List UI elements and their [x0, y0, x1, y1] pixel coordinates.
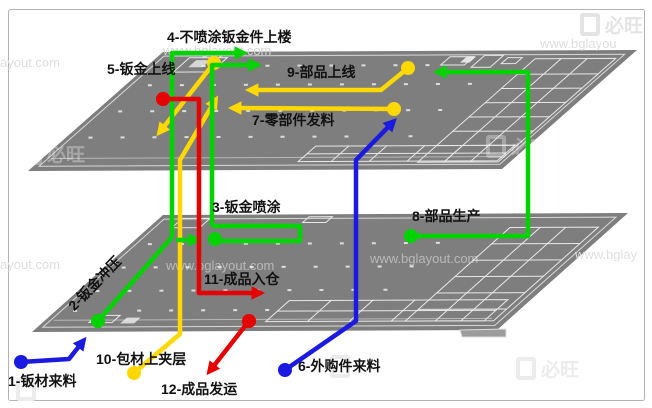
flow-label-12: 12-成品发运	[161, 379, 237, 399]
flow-1-node-dot	[14, 355, 28, 369]
flow-label-9: 9-部品上线	[287, 62, 355, 82]
flow-6-path	[285, 121, 394, 370]
flow-label-5: 5-钣金上线	[107, 59, 175, 79]
flow-12-path	[209, 321, 249, 372]
flow-10-path	[134, 99, 216, 373]
flow-2-node-dot	[91, 314, 105, 328]
flow-3-node-dot	[208, 232, 222, 246]
flow-label-11: 11-成品入仓	[204, 269, 279, 289]
flow-label-1: 1-钣材来料	[8, 371, 76, 391]
flow-11-node-dot	[156, 92, 170, 106]
flow-7-path	[232, 108, 394, 109]
flow-3-paint-loop-path	[212, 226, 300, 241]
flow-1-path	[21, 340, 84, 362]
flow-6-node-dot	[278, 363, 292, 377]
flow-label-4: 4-不喷涂钣金件上楼	[167, 27, 291, 47]
flow-label-7: 7-零部件发料	[252, 110, 334, 130]
flow-12-node-dot	[242, 314, 256, 328]
flow-label-8: 8-部品生产	[412, 206, 480, 226]
factory-flow-diagram: ayout.com www.bglayout.com 必旺 www.bglayo…	[0, 0, 652, 408]
flow-label-10: 10-包材上夹层	[96, 349, 186, 369]
flow-label-3: 3-钣金喷涂	[212, 197, 280, 217]
flow-8-node-dot	[404, 229, 418, 243]
flow-label-6: 6-外购件来料	[298, 356, 380, 376]
